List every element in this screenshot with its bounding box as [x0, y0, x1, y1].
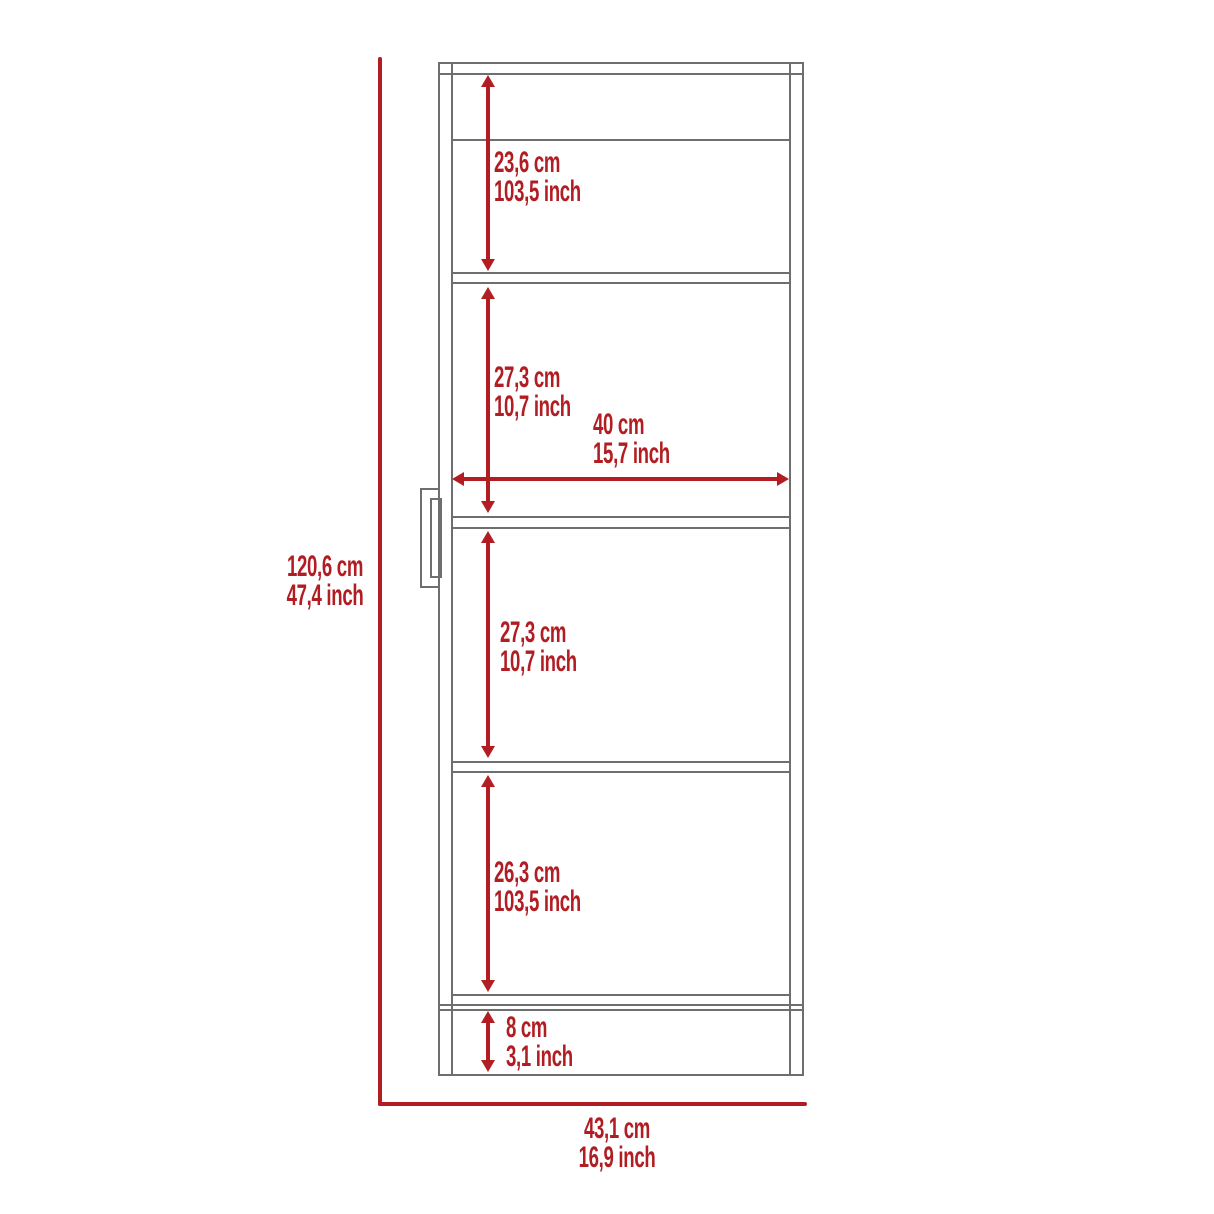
shelf-band-4-bottom — [451, 771, 790, 773]
arrowhead-down-icon — [481, 501, 495, 513]
label-section-2: 27,3 cm 10,7 inch — [494, 363, 571, 421]
shelf-line-1 — [451, 139, 790, 141]
section-1-cm: 23,6 cm — [494, 148, 581, 177]
overall-height-cm: 120,6 cm — [272, 552, 377, 581]
arrowhead-down-icon — [481, 1060, 495, 1072]
label-overall-width: 43,1 cm 16,9 inch — [564, 1114, 669, 1172]
arrow-shaft — [486, 1021, 490, 1062]
shelf-band-4-top — [451, 761, 790, 763]
label-section-4: 26,3 cm 103,5 inch — [494, 858, 581, 916]
arrowhead-down-icon — [481, 746, 495, 758]
section-3-inch: 10,7 inch — [500, 647, 577, 676]
label-section-1: 23,6 cm 103,5 inch — [494, 148, 581, 206]
arrow-shaft — [486, 85, 490, 261]
overall-width-inch: 16,9 inch — [564, 1143, 669, 1172]
shelf-band-2-top — [451, 272, 790, 274]
door-handle-inner — [430, 498, 442, 578]
cabinet-base-top-line — [438, 1004, 804, 1006]
base-cm: 8 cm — [506, 1013, 573, 1042]
arrowhead-down-icon — [481, 980, 495, 992]
arrow-shaft — [462, 477, 779, 481]
height-arrow-section-1 — [481, 75, 495, 271]
overall-height-line — [378, 57, 382, 1106]
width-arrow-interior — [452, 472, 789, 486]
arrowhead-down-icon — [481, 259, 495, 271]
shelf-line-5 — [451, 994, 790, 996]
label-interior-width: 40 cm 15,7 inch — [593, 410, 670, 468]
section-4-cm: 26,3 cm — [494, 858, 581, 887]
cabinet-right-inner-edge — [789, 62, 791, 1076]
shelf-band-3-top — [451, 516, 790, 518]
section-3-cm: 27,3 cm — [500, 618, 577, 647]
shelf-band-2-bottom — [451, 282, 790, 284]
height-arrow-base — [481, 1011, 495, 1072]
interior-width-cm: 40 cm — [593, 410, 670, 439]
label-section-3: 27,3 cm 10,7 inch — [500, 618, 577, 676]
label-overall-height: 120,6 cm 47,4 inch — [272, 552, 377, 610]
cabinet-bottom-edge — [438, 1074, 804, 1076]
cabinet-top-edge — [438, 62, 804, 64]
interior-width-inch: 15,7 inch — [593, 439, 670, 468]
section-1-inch: 103,5 inch — [494, 177, 581, 206]
arrow-shaft — [486, 785, 490, 982]
height-arrow-section-3 — [481, 531, 495, 758]
section-2-cm: 27,3 cm — [494, 363, 571, 392]
section-4-inch: 103,5 inch — [494, 887, 581, 916]
dimension-diagram: 120,6 cm 47,4 inch 43,1 cm 16,9 inch 23,… — [0, 0, 1214, 1214]
shelf-band-3-bottom — [451, 527, 790, 529]
overall-width-line — [378, 1102, 807, 1106]
label-base: 8 cm 3,1 inch — [506, 1013, 573, 1071]
cabinet-left-inner-edge — [451, 62, 453, 1076]
overall-width-cm: 43,1 cm — [564, 1114, 669, 1143]
section-2-inch: 10,7 inch — [494, 392, 571, 421]
base-inch: 3,1 inch — [506, 1042, 573, 1071]
arrow-shaft — [486, 541, 490, 748]
height-arrow-section-4 — [481, 775, 495, 992]
overall-height-inch: 47,4 inch — [272, 581, 377, 610]
cabinet-right-outer-edge — [802, 62, 804, 1076]
arrowhead-right-icon — [777, 472, 789, 486]
